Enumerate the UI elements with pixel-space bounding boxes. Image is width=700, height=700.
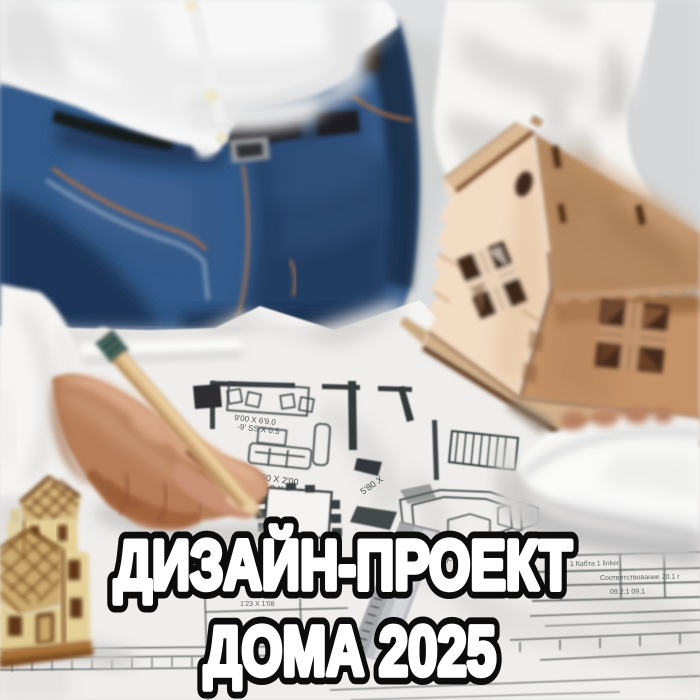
svg-text:ДОМА 2025: ДОМА 2025 bbox=[204, 612, 496, 690]
svg-text:ДИЗАЙН-ПРОЕКТ: ДИЗАЙН-ПРОЕКТ bbox=[114, 525, 572, 604]
